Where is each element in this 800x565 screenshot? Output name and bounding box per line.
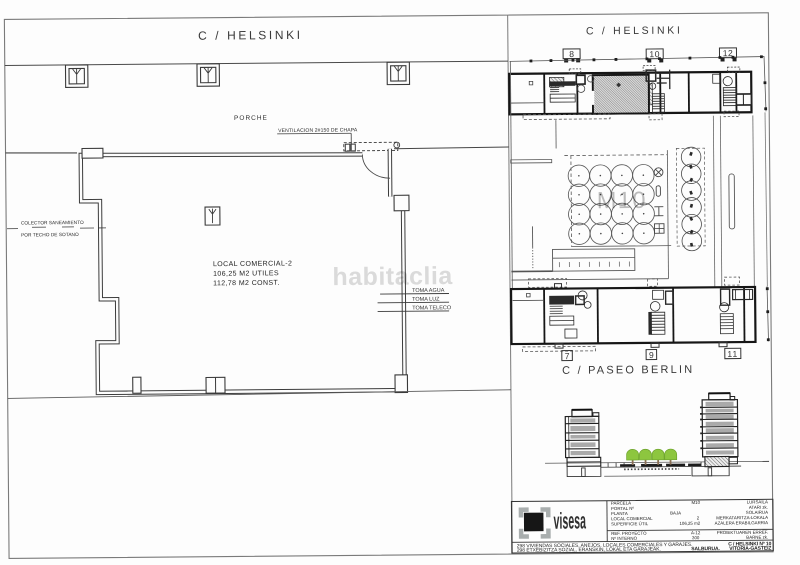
svg-text:AZALERA ERABILGARRIA: AZALERA ERABILGARRIA [715, 520, 769, 525]
svg-text:9: 9 [649, 350, 654, 360]
svg-text:PORCHE: PORCHE [234, 115, 268, 122]
svg-text:COLECTOR SANEAMIENTO: COLECTOR SANEAMIENTO [21, 220, 84, 227]
svg-text:C / PASEO BERLIN: C / PASEO BERLIN [562, 364, 694, 377]
svg-text:TOMA AGUA: TOMA AGUA [412, 288, 445, 294]
svg-text:PARCELA: PARCELA [611, 501, 631, 506]
svg-text:VITORIA-GASTEIZ: VITORIA-GASTEIZ [729, 546, 771, 552]
svg-text:LURSAILA: LURSAILA [747, 499, 768, 504]
svg-text:C / HELSINKI: C / HELSINKI [198, 28, 303, 43]
svg-text:M10: M10 [597, 187, 647, 213]
svg-text:112,78 M2 CONST.: 112,78 M2 CONST. [213, 280, 280, 288]
svg-text:LOCAL COMERCIAL-2: LOCAL COMERCIAL-2 [213, 260, 292, 268]
svg-text:POR TECHO DE SOTANO: POR TECHO DE SOTANO [21, 232, 79, 239]
svg-text:300: 300 [692, 535, 700, 540]
svg-text:106,25 M2 UTILES: 106,25 M2 UTILES [213, 270, 279, 278]
svg-text:SALBURUA.: SALBURUA. [691, 546, 720, 552]
svg-text:visesa: visesa [553, 508, 586, 534]
svg-text:SUPERFICIE ÚTIL: SUPERFICIE ÚTIL [611, 521, 649, 526]
svg-text:BAJA: BAJA [670, 510, 681, 515]
svg-text:7: 7 [565, 351, 570, 361]
svg-text:habitaclia: habitaclia [332, 262, 453, 291]
svg-text:BARNE zk.: BARNE zk. [746, 535, 768, 540]
svg-text:Nº INTERNO: Nº INTERNO [611, 536, 637, 541]
svg-text:C / HELSINKI: C / HELSINKI [586, 25, 683, 38]
svg-text:8: 8 [569, 49, 574, 59]
svg-text:106,25 m2: 106,25 m2 [679, 521, 700, 526]
svg-text:11: 11 [727, 349, 738, 359]
svg-text:298 ETXEBIZITZA SOZIAL, ERANSK: 298 ETXEBIZITZA SOZIAL, ERANSKIN, LOKAL … [517, 546, 661, 553]
svg-text:M10: M10 [691, 500, 700, 505]
